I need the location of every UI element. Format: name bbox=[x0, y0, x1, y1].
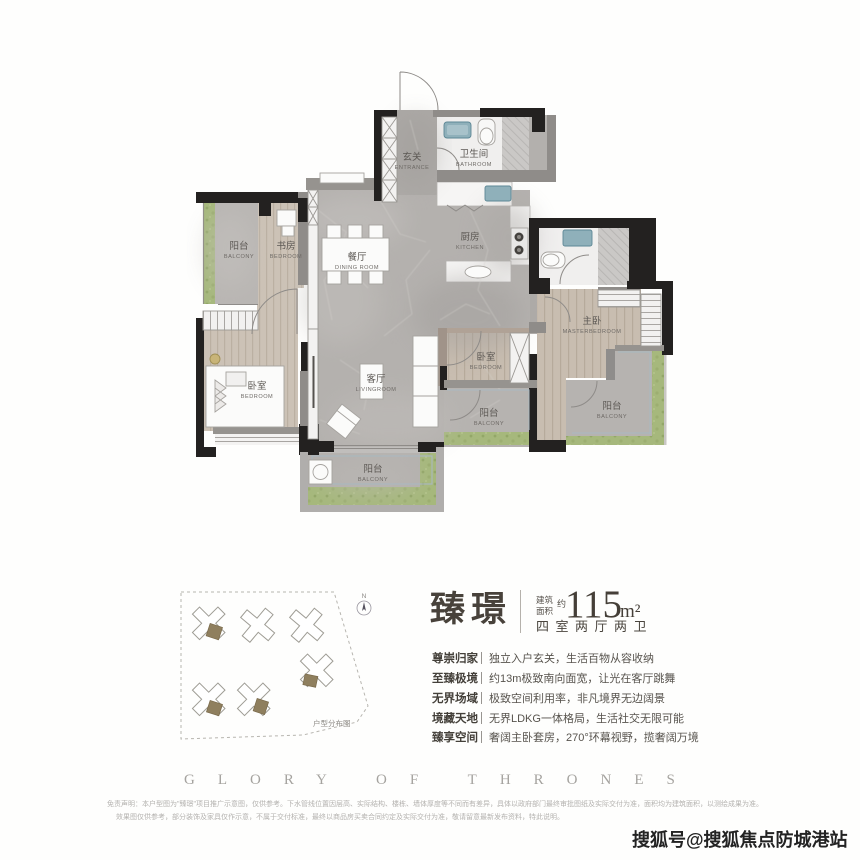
svg-text:BEDROOM: BEDROOM bbox=[241, 394, 273, 400]
svg-text:BATHROOM: BATHROOM bbox=[456, 162, 492, 168]
svg-text:奢阔主卧套房，270°环幕视野，揽奢阔万境: 奢阔主卧套房，270°环幕视野，揽奢阔万境 bbox=[489, 730, 699, 744]
svg-text:臻享空间: 臻享空间 bbox=[432, 730, 478, 744]
svg-text:极致空间利用率，非凡境界无边阔景: 极致空间利用率，非凡境界无边阔景 bbox=[489, 691, 665, 705]
svg-text:独立入户玄关，生活百物从容收纳: 独立入户玄关，生活百物从容收纳 bbox=[489, 651, 654, 665]
svg-text:户型分布图: 户型分布图 bbox=[313, 718, 351, 728]
svg-text:尊崇归家: 尊崇归家 bbox=[432, 651, 478, 665]
svg-text:四室两厅两卫: 四室两厅两卫 bbox=[536, 619, 653, 634]
svg-text:阳台: 阳台 bbox=[602, 400, 621, 412]
svg-text:书房: 书房 bbox=[276, 240, 295, 252]
svg-text:至臻极境: 至臻极境 bbox=[432, 671, 478, 685]
svg-text:BEDROOM: BEDROOM bbox=[270, 254, 302, 260]
svg-text:厨房: 厨房 bbox=[460, 231, 479, 243]
svg-text:约13m极致南向面宽，让光在客厅跳舞: 约13m极致南向面宽，让光在客厅跳舞 bbox=[489, 671, 675, 685]
svg-text:卧室: 卧室 bbox=[247, 380, 266, 392]
svg-text:玄关: 玄关 bbox=[402, 151, 422, 163]
svg-text:N: N bbox=[362, 593, 367, 600]
svg-text:面积: 面积 bbox=[536, 606, 554, 616]
svg-text:LIVINGROOM: LIVINGROOM bbox=[356, 387, 397, 393]
svg-text:ENTRANCE: ENTRANCE bbox=[395, 165, 430, 171]
svg-text:餐厅: 餐厅 bbox=[347, 251, 367, 263]
svg-text:BALCONY: BALCONY bbox=[224, 254, 254, 260]
svg-text:DINING ROOM: DINING ROOM bbox=[335, 265, 379, 271]
svg-text:免责声明：本户型图为"臻璟"项目推广示意图，仅供参考。下水管: 免责声明：本户型图为"臻璟"项目推广示意图，仅供参考。下水管线位置因层高、实际结… bbox=[107, 799, 763, 808]
svg-text:BEDROOM: BEDROOM bbox=[470, 365, 502, 371]
svg-text:卧室: 卧室 bbox=[476, 351, 495, 363]
svg-text:主卧: 主卧 bbox=[582, 315, 602, 327]
svg-text:BALCONY: BALCONY bbox=[474, 421, 504, 427]
svg-text:臻璟: 臻璟 bbox=[430, 590, 512, 629]
svg-text:效果图仅供参考，部分装饰及家具仅作示意，不属于交付标准，最终: 效果图仅供参考，部分装饰及家具仅作示意，不属于交付标准，最终以商品房买卖合同约定… bbox=[116, 812, 564, 821]
svg-text:阳台: 阳台 bbox=[229, 240, 248, 252]
svg-text:客厅: 客厅 bbox=[366, 373, 386, 385]
svg-text:BALCONY: BALCONY bbox=[358, 477, 388, 483]
svg-text:境藏天地: 境藏天地 bbox=[432, 711, 478, 725]
svg-text:搜狐号@搜狐焦点防城港站: 搜狐号@搜狐焦点防城港站 bbox=[632, 829, 848, 850]
svg-text:无界场域: 无界场域 bbox=[431, 691, 478, 705]
svg-text:阳台: 阳台 bbox=[479, 407, 498, 419]
svg-text:无界LDKG一体格局，生活社交无限可能: 无界LDKG一体格局，生活社交无限可能 bbox=[489, 711, 684, 725]
svg-text:建筑: 建筑 bbox=[536, 595, 554, 605]
svg-text:卫生间: 卫生间 bbox=[460, 148, 489, 160]
svg-text:MASTERBEDROOM: MASTERBEDROOM bbox=[563, 329, 622, 335]
svg-text:GLORY OF THRONES: GLORY OF THRONES bbox=[184, 772, 698, 788]
svg-text:BALCONY: BALCONY bbox=[597, 414, 627, 420]
svg-text:阳台: 阳台 bbox=[363, 463, 382, 475]
svg-text:KITCHEN: KITCHEN bbox=[456, 245, 484, 251]
